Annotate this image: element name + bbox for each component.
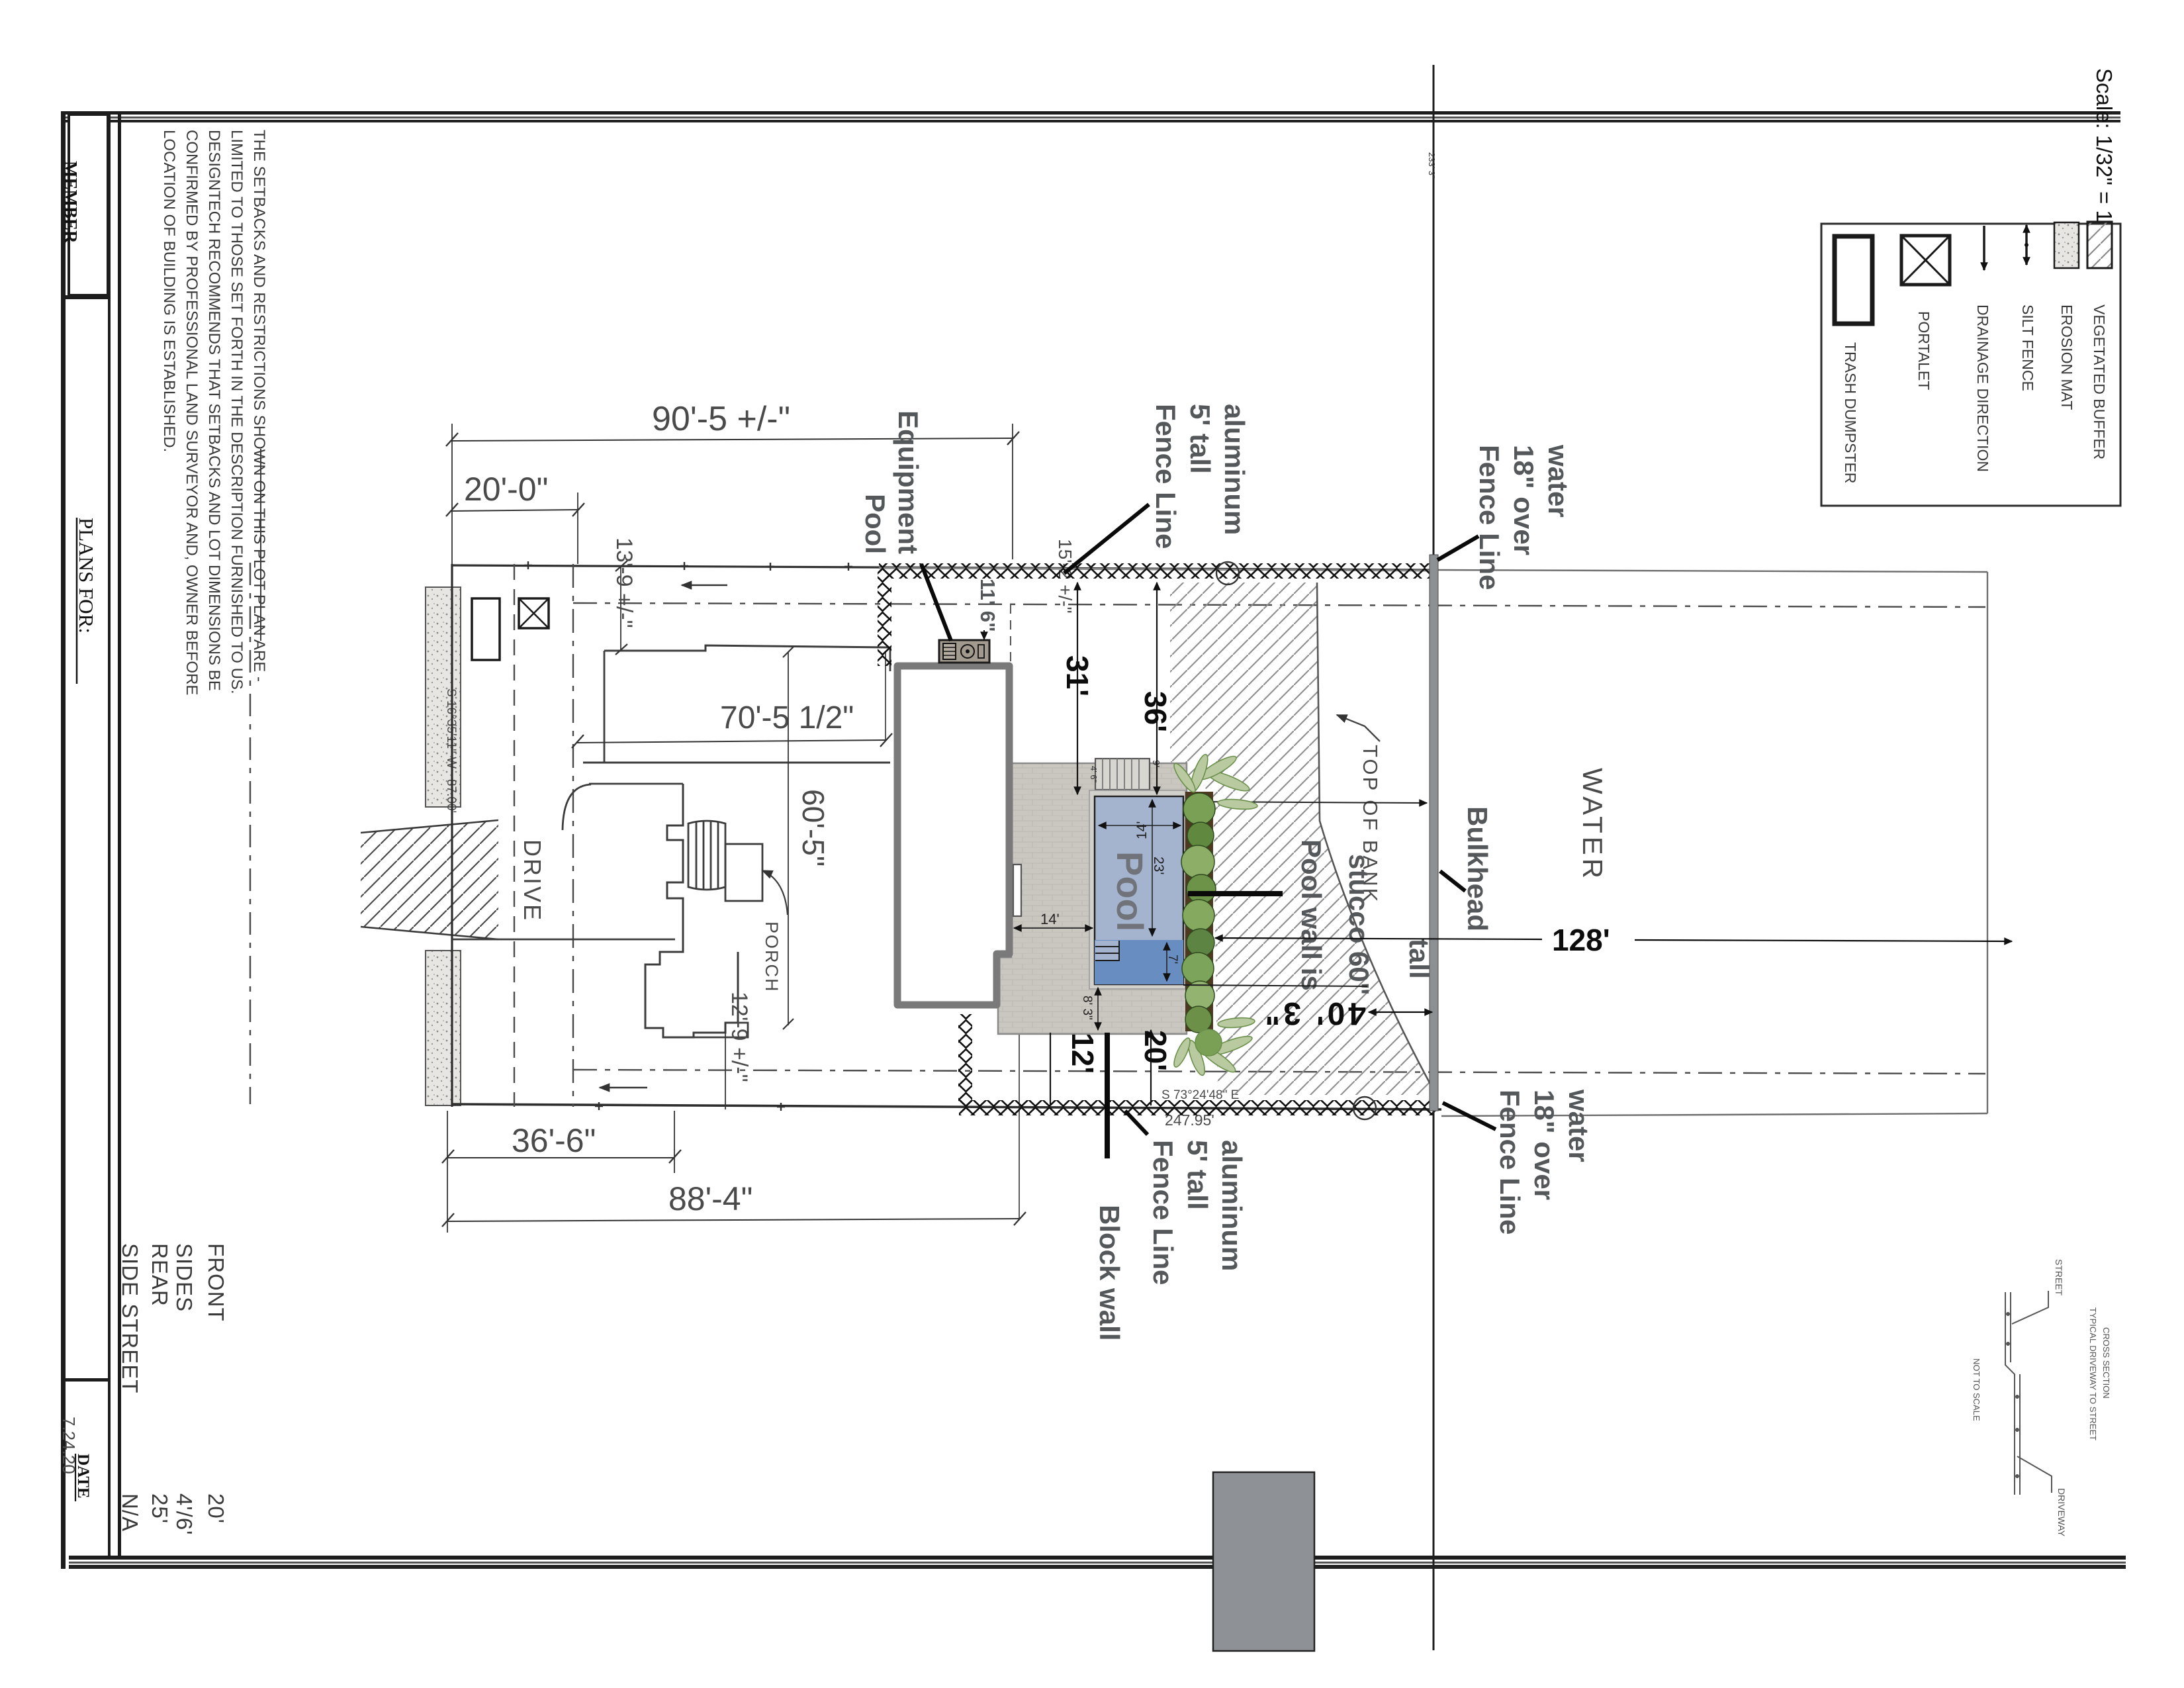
svg-text:LIMITED TO THOSE SET FORTH IN: LIMITED TO THOSE SET FORTH IN THE DESCRI…: [228, 130, 246, 694]
svg-text:20': 20': [1138, 1030, 1173, 1071]
svg-text:FRONT: FRONT: [204, 1243, 228, 1322]
svg-text:N/A: N/A: [118, 1493, 142, 1532]
svg-text:TRASH DUMPSTER: TRASH DUMPSTER: [1842, 342, 1859, 483]
svg-text:128': 128': [1552, 923, 1610, 957]
svg-text:VEGETATED BUFFER: VEGETATED BUFFER: [2091, 305, 2108, 459]
svg-text:40' 3": 40' 3": [1261, 996, 1366, 1031]
svg-text:4' 6": 4' 6": [1089, 766, 1099, 783]
svg-text:CONFIRMED BY PROFESSIONAL LAND: CONFIRMED BY PROFESSIONAL LAND SURVEYOR …: [183, 130, 201, 695]
svg-text:5' tall: 5' tall: [1185, 404, 1216, 474]
svg-text:Fence Line: Fence Line: [1494, 1090, 1525, 1235]
svg-text:31': 31': [1060, 655, 1095, 696]
svg-text:Equipment: Equipment: [893, 410, 924, 554]
svg-text:LOCATION OF BUILDING IS ESTABL: LOCATION OF BUILDING IS ESTABLISHED.: [160, 130, 178, 452]
svg-text:14': 14': [1040, 911, 1060, 927]
svg-text:Pool: Pool: [1109, 851, 1151, 931]
svg-text:EROSION MAT: EROSION MAT: [2058, 305, 2075, 410]
svg-text:Fence Line: Fence Line: [1148, 1140, 1179, 1285]
svg-text:PORCH: PORCH: [762, 921, 782, 993]
svg-text:Block wall: Block wall: [1094, 1205, 1125, 1340]
svg-text:18" over: 18" over: [1508, 445, 1539, 555]
svg-text:THE SETBACKS AND RESTRICTIONS: THE SETBACKS AND RESTRICTIONS SHOWN ON T…: [250, 130, 268, 682]
svg-text:23': 23': [1151, 857, 1166, 874]
svg-text:7.24.20: 7.24.20: [59, 1417, 79, 1474]
svg-text:233' 3": 233' 3": [1427, 152, 1437, 179]
svg-text:water: water: [1543, 444, 1574, 518]
svg-text:Fence Line: Fence Line: [1150, 404, 1181, 549]
svg-text:20'-0": 20'-0": [464, 471, 548, 508]
svg-text:Bulkhead: Bulkhead: [1462, 806, 1493, 931]
svg-text:DRIVEWAY: DRIVEWAY: [2056, 1488, 2067, 1537]
svg-text:Scale: 1/32" = 1 ft: Scale: 1/32" = 1 ft: [2092, 68, 2116, 240]
svg-text:36'-6": 36'-6": [512, 1122, 596, 1159]
svg-text:DRIVE: DRIVE: [519, 839, 546, 922]
svg-text:PLANS FOR:: PLANS FOR:: [75, 518, 98, 633]
svg-text:7': 7': [1165, 955, 1179, 964]
svg-text:aluminum: aluminum: [1216, 1140, 1248, 1271]
svg-text:25': 25': [148, 1493, 172, 1524]
svg-text:70'-5 1/2": 70'-5 1/2": [720, 700, 854, 735]
svg-text:4'/6': 4'/6': [172, 1493, 197, 1535]
svg-text:TYPICAL DRIVEWAY TO STREET: TYPICAL DRIVEWAY TO STREET: [2088, 1307, 2098, 1440]
svg-text:aluminum: aluminum: [1219, 404, 1250, 535]
svg-text:DRAINAGE DIRECTION: DRAINAGE DIRECTION: [1974, 305, 1991, 472]
svg-text:REAR: REAR: [148, 1243, 172, 1307]
svg-text:9': 9': [1150, 760, 1161, 767]
svg-text:13'-9 +/-": 13'-9 +/-": [612, 538, 637, 628]
svg-text:88'-4": 88'-4": [668, 1180, 752, 1217]
svg-text:Pool: Pool: [860, 494, 891, 554]
svg-text:SIDES: SIDES: [172, 1243, 197, 1312]
svg-text:MEMBER: MEMBER: [61, 161, 81, 244]
svg-text:90'-5 +/-": 90'-5 +/-": [652, 400, 790, 438]
svg-text:60'-5": 60'-5": [796, 789, 831, 867]
svg-text:20': 20': [204, 1493, 228, 1524]
svg-text:5' tall: 5' tall: [1182, 1140, 1213, 1210]
svg-text:WATER: WATER: [1577, 768, 1608, 882]
svg-text:DESIGNTECH RECOMMENDS THAT SET: DESIGNTECH RECOMMENDS THAT SETBACKS AND …: [205, 130, 223, 691]
svg-text:STREET: STREET: [2054, 1259, 2064, 1296]
svg-text:12': 12': [1066, 1033, 1100, 1074]
svg-text:CROSS SECTION: CROSS SECTION: [2101, 1327, 2111, 1399]
svg-text:NOT TO SCALE: NOT TO SCALE: [1972, 1358, 1981, 1421]
svg-text:tall: tall: [1404, 939, 1435, 979]
svg-text:36': 36': [1138, 691, 1173, 732]
svg-text:Pool wall is: Pool wall is: [1296, 839, 1327, 991]
svg-text:12'-9 +/-": 12'-9 +/-": [727, 992, 752, 1082]
svg-text:Fence Line: Fence Line: [1474, 445, 1505, 590]
svg-text:water: water: [1563, 1089, 1594, 1162]
svg-text:SILT FENCE: SILT FENCE: [2019, 305, 2036, 391]
svg-text:SIDE STREET: SIDE STREET: [118, 1243, 142, 1393]
svg-text:14': 14': [1134, 821, 1150, 839]
svg-text:PORTALET: PORTALET: [1915, 311, 1933, 390]
svg-text:11' 6": 11' 6": [976, 579, 999, 632]
svg-text:18" over: 18" over: [1529, 1090, 1560, 1200]
svg-text:8' 3": 8' 3": [1080, 996, 1094, 1020]
svg-text:stucco 60": stucco 60": [1343, 854, 1375, 996]
